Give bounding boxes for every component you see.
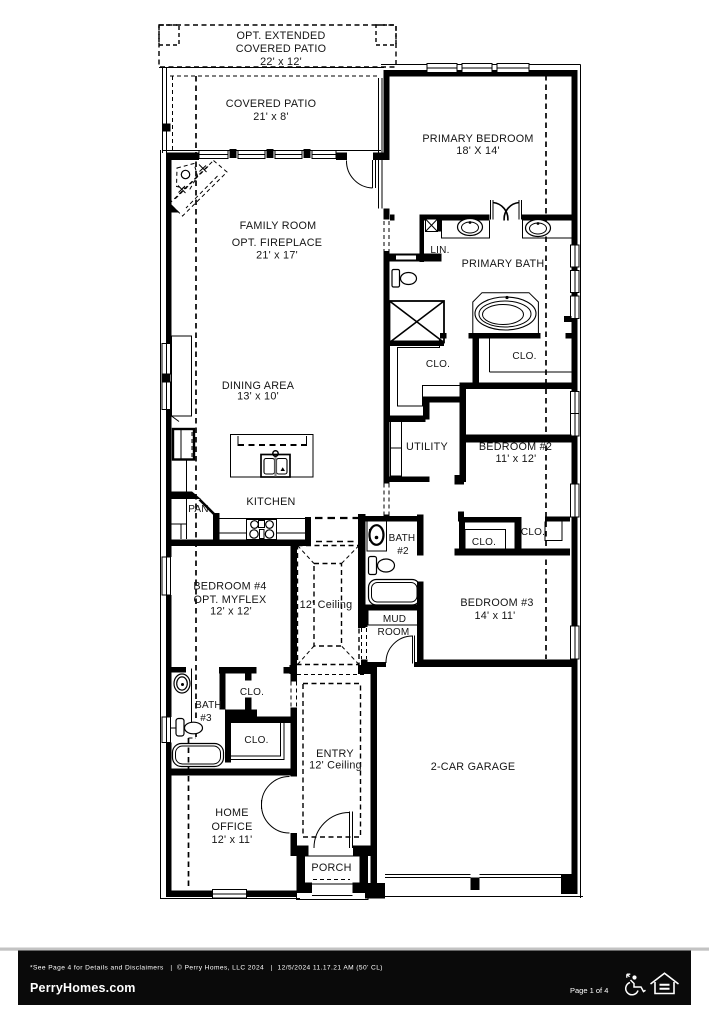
- svg-text:22' x 12': 22' x 12': [260, 56, 302, 68]
- svg-text:CLO.: CLO.: [512, 351, 536, 362]
- svg-text:FAMILY ROOM: FAMILY ROOM: [240, 220, 317, 232]
- svg-text:ENTRY: ENTRY: [316, 748, 354, 760]
- svg-text:13' x 10': 13' x 10': [237, 391, 279, 403]
- svg-text:KITCHEN: KITCHEN: [246, 496, 295, 508]
- svg-text:COVERED PATIO: COVERED PATIO: [226, 98, 316, 110]
- svg-text:CLO.: CLO.: [521, 527, 545, 538]
- svg-text:OPT. MYFLEX: OPT. MYFLEX: [194, 594, 267, 606]
- svg-text:BATH: BATH: [195, 700, 222, 711]
- svg-text:18' X 14': 18' X 14': [456, 145, 500, 157]
- svg-text:12' x 11': 12' x 11': [212, 834, 253, 846]
- svg-text:#3: #3: [200, 713, 212, 724]
- svg-text:Page 1 of 4: Page 1 of 4: [570, 986, 608, 995]
- svg-text:PORCH: PORCH: [311, 862, 351, 874]
- svg-text:PerryHomes.com: PerryHomes.com: [30, 981, 136, 995]
- svg-text:12' Ceiling: 12' Ceiling: [300, 599, 353, 611]
- svg-text:PRIMARY BATH: PRIMARY BATH: [462, 258, 545, 270]
- svg-text:PRIMARY BEDROOM: PRIMARY BEDROOM: [422, 133, 533, 145]
- svg-text:CLO.: CLO.: [472, 537, 496, 548]
- svg-text:12' x 12': 12' x 12': [210, 606, 252, 618]
- svg-text:11' x 12': 11' x 12': [496, 453, 537, 465]
- svg-text:UTILITY: UTILITY: [406, 441, 448, 453]
- svg-text:BEDROOM #4: BEDROOM #4: [193, 581, 266, 593]
- svg-text:BEDROOM #3: BEDROOM #3: [460, 597, 533, 609]
- svg-text:12' Ceiling: 12' Ceiling: [309, 760, 362, 772]
- svg-text:14' x 11': 14' x 11': [475, 610, 516, 622]
- svg-text:CLO.: CLO.: [240, 687, 264, 698]
- svg-text:HOME: HOME: [215, 807, 248, 819]
- svg-text:BEDROOM #2: BEDROOM #2: [479, 441, 552, 453]
- svg-text:21' x 8': 21' x 8': [253, 111, 289, 123]
- svg-text:21' x 17': 21' x 17': [256, 250, 298, 262]
- svg-text:MUD: MUD: [383, 614, 406, 625]
- svg-text:#2: #2: [397, 546, 409, 557]
- svg-text:ROOM: ROOM: [378, 627, 410, 638]
- svg-text:CLO.: CLO.: [244, 735, 268, 746]
- svg-text:CLO.: CLO.: [426, 359, 450, 370]
- svg-text:COVERED PATIO: COVERED PATIO: [236, 43, 326, 55]
- svg-text:*See Page 4 for Details and Di: *See Page 4 for Details and Disclaimers …: [30, 964, 383, 972]
- svg-text:OPT. FIREPLACE: OPT. FIREPLACE: [232, 237, 323, 249]
- svg-text:OFFICE: OFFICE: [211, 821, 252, 833]
- svg-text:2-CAR GARAGE: 2-CAR GARAGE: [431, 761, 516, 773]
- svg-text:OPT. EXTENDED: OPT. EXTENDED: [236, 30, 325, 42]
- svg-text:BATH: BATH: [389, 533, 416, 544]
